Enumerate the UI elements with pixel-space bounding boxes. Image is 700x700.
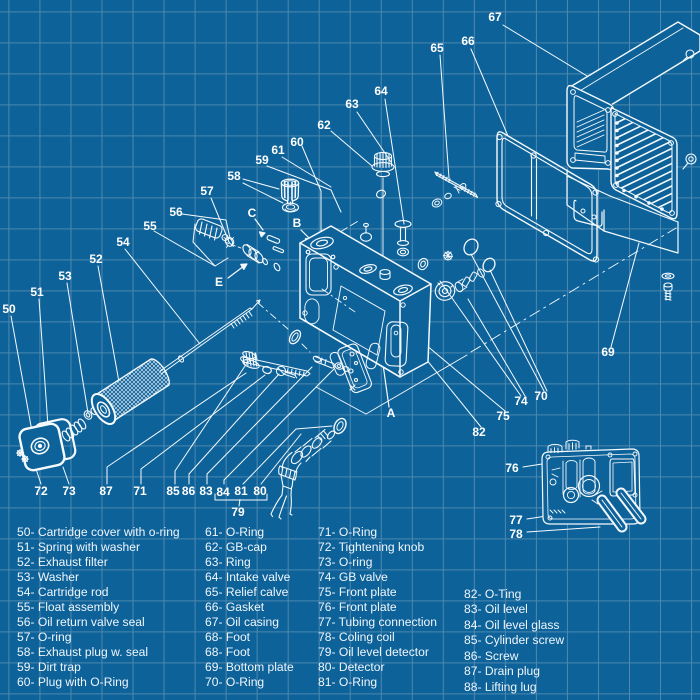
svg-text:87: 87 [99, 484, 113, 498]
svg-text:54: 54 [116, 235, 130, 249]
svg-text:85: 85 [166, 484, 180, 498]
svg-text:61: 61 [271, 143, 285, 157]
svg-text:73- O-ring: 73- O-ring [318, 555, 372, 569]
svg-text:53: 53 [58, 269, 72, 283]
svg-text:81: 81 [234, 484, 248, 498]
svg-text:55- Float assembly: 55- Float assembly [17, 600, 120, 614]
svg-text:71: 71 [133, 484, 147, 498]
svg-text:83: 83 [199, 484, 213, 498]
svg-text:57- O-ring: 57- O-ring [17, 630, 71, 644]
svg-text:79: 79 [231, 505, 245, 519]
svg-text:72: 72 [34, 484, 48, 498]
svg-text:50: 50 [2, 302, 16, 316]
svg-text:53- Washer: 53- Washer [17, 570, 79, 584]
svg-text:74: 74 [514, 394, 528, 408]
svg-text:58: 58 [227, 169, 241, 183]
svg-text:60- Plug with O-Ring: 60- Plug with O-Ring [17, 675, 129, 689]
svg-text:57: 57 [200, 184, 214, 198]
svg-text:68- Foot: 68- Foot [205, 645, 251, 659]
svg-text:59: 59 [255, 153, 269, 167]
svg-text:C: C [248, 206, 257, 220]
svg-text:84: 84 [216, 485, 230, 499]
svg-text:85- Cylinder screw: 85- Cylinder screw [464, 633, 564, 647]
svg-text:A: A [387, 406, 396, 420]
svg-text:80- Detector: 80- Detector [318, 660, 385, 674]
svg-text:72- Tightening knob: 72- Tightening knob [318, 540, 425, 554]
svg-text:B: B [293, 216, 302, 230]
svg-text:66: 66 [461, 34, 475, 48]
svg-text:77- Tubing connection: 77- Tubing connection [318, 615, 437, 629]
svg-text:70: 70 [534, 389, 548, 403]
svg-text:77: 77 [509, 513, 523, 527]
svg-text:76- Front plate: 76- Front plate [318, 600, 397, 614]
svg-text:51- Spring with washer: 51- Spring with washer [17, 540, 140, 554]
svg-text:52- Exhaust filter: 52- Exhaust filter [17, 555, 108, 569]
svg-text:66- Gasket: 66- Gasket [205, 600, 265, 614]
svg-text:64: 64 [374, 84, 388, 98]
svg-text:86- Screw: 86- Screw [464, 649, 519, 663]
svg-text:86: 86 [182, 484, 196, 498]
svg-text:80: 80 [253, 484, 267, 498]
svg-text:78- Coling coil: 78- Coling coil [318, 630, 395, 644]
svg-text:61- O-Ring: 61- O-Ring [205, 525, 264, 539]
svg-text:76: 76 [505, 461, 519, 475]
svg-text:70- O-Ring: 70- O-Ring [205, 675, 264, 689]
svg-text:56- Oil return valve seal: 56- Oil return valve seal [17, 615, 145, 629]
svg-text:62- GB-cap: 62- GB-cap [205, 540, 267, 554]
svg-text:65: 65 [430, 41, 444, 55]
svg-text:75- Front plate: 75- Front plate [318, 585, 397, 599]
svg-text:83- Oil level: 83- Oil level [464, 602, 528, 616]
svg-text:69: 69 [601, 345, 615, 359]
svg-text:68- Foot: 68- Foot [205, 630, 251, 644]
svg-text:60: 60 [290, 135, 304, 149]
svg-text:71- O-Ring: 71- O-Ring [318, 525, 377, 539]
svg-text:63: 63 [345, 97, 359, 111]
svg-text:55: 55 [143, 219, 157, 233]
svg-text:56: 56 [169, 205, 183, 219]
svg-text:50- Cartridge cover with o-rin: 50- Cartridge cover with o-ring [17, 525, 180, 539]
svg-text:82- O-Ting: 82- O-Ting [464, 587, 521, 601]
svg-text:67: 67 [488, 10, 502, 24]
svg-text:65- Relief calve: 65- Relief calve [205, 585, 289, 599]
svg-text:78: 78 [509, 527, 523, 541]
svg-text:54- Cartridge rod: 54- Cartridge rod [17, 585, 108, 599]
svg-text:51: 51 [30, 285, 44, 299]
svg-text:79- Oil level detector: 79- Oil level detector [318, 645, 429, 659]
svg-text:E: E [215, 275, 223, 289]
svg-text:69- Bottom plate: 69- Bottom plate [205, 660, 294, 674]
svg-text:88- Lifting lug: 88- Lifting lug [464, 680, 537, 694]
svg-text:62: 62 [317, 118, 331, 132]
svg-text:59- Dirt trap: 59- Dirt trap [17, 660, 81, 674]
svg-text:81- O-Ring: 81- O-Ring [318, 675, 377, 689]
svg-text:87- Drain plug: 87- Drain plug [464, 664, 540, 678]
svg-text:64- Intake valve: 64- Intake valve [205, 570, 291, 584]
svg-text:74- GB valve: 74- GB valve [318, 570, 388, 584]
svg-text:84- Oil level glass: 84- Oil level glass [464, 618, 559, 632]
svg-text:67- Oil casing: 67- Oil casing [205, 615, 279, 629]
svg-text:75: 75 [496, 409, 510, 423]
svg-text:73: 73 [62, 484, 76, 498]
svg-text:82: 82 [472, 425, 486, 439]
svg-text:63- Ring: 63- Ring [205, 555, 251, 569]
svg-text:52: 52 [89, 252, 103, 266]
svg-text:58- Exhaust plug w. seal: 58- Exhaust plug w. seal [17, 645, 148, 659]
